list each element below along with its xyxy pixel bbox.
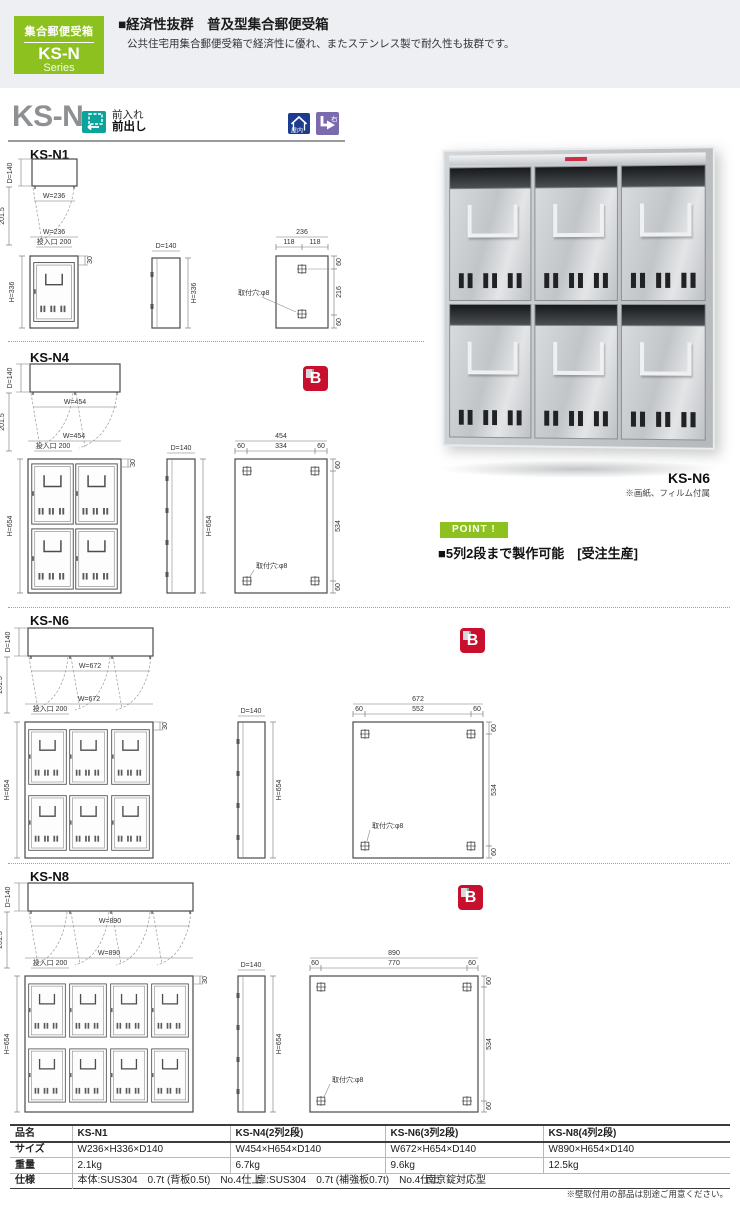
svg-text:30: 30 — [162, 722, 169, 730]
title-underline — [8, 140, 345, 142]
svg-text:W=236: W=236 — [43, 193, 65, 200]
indoor-label: 屋内 — [291, 127, 303, 135]
cabinet-doors — [449, 165, 706, 441]
svg-text:60: 60 — [336, 258, 343, 266]
indoor-icon: 屋内 — [288, 113, 310, 134]
svg-text:H=654: H=654 — [206, 515, 213, 536]
mount-hole-label: 取付穴:φ8 — [332, 1075, 363, 1084]
product-weight: 2.1kg — [72, 1158, 230, 1174]
product-size: W672×H654×D140 — [385, 1142, 543, 1158]
svg-text:118: 118 — [309, 239, 320, 246]
svg-text:D=140: D=140 — [241, 708, 262, 715]
ksn1-top-view: D=140 201.5 W=236 — [0, 159, 77, 245]
svg-text:534: 534 — [335, 520, 342, 532]
product-size: W890×H654×D140 — [543, 1142, 730, 1158]
table-row-spec: 仕様 本体:SUS304 0.7t (背板0.5t) No.4仕上 扉:SUS3… — [10, 1173, 730, 1189]
product-weight: 12.5kg — [543, 1158, 730, 1174]
svg-text:770: 770 — [388, 960, 400, 967]
svg-text:H=654: H=654 — [4, 1033, 11, 1054]
ksn4-back-view: 454 60 334 60 60 534 60 取付穴:φ8 — [235, 433, 342, 593]
mount-hole-label: 取付穴:φ8 — [256, 561, 287, 570]
svg-text:投入口 200: 投入口 200 — [33, 958, 68, 967]
svg-text:H=654: H=654 — [276, 1033, 283, 1054]
right-arrow-icon: 右 — [316, 112, 339, 135]
svg-text:60: 60 — [491, 724, 498, 732]
header-band: 集合郵便受箱 KS-N Series ■経済性抜群 普及型集合郵便受箱 公共住宅… — [0, 0, 740, 88]
svg-text:H=336: H=336 — [191, 282, 198, 303]
svg-text:60: 60 — [355, 706, 363, 713]
svg-text:H=654: H=654 — [276, 779, 283, 800]
row-label-weight: 重量 — [10, 1158, 72, 1174]
separator-3 — [8, 863, 730, 864]
svg-text:552: 552 — [412, 706, 424, 713]
photo-model-caption: KS-N6 — [520, 470, 710, 486]
spec-table: 品名 KS-N1 KS-N4(2列2段) KS-N6(3列2段) KS-N8(4… — [10, 1124, 730, 1189]
mailbox-door — [449, 167, 531, 301]
table-row-size: サイズ W236×H336×D140 W454×H654×D140 W672×H… — [10, 1142, 730, 1158]
svg-text:890: 890 — [388, 950, 400, 957]
product-name: KS-N4(2列2段) — [230, 1125, 385, 1142]
separator-2 — [8, 607, 730, 608]
svg-text:60: 60 — [473, 706, 481, 713]
row-label-size: サイズ — [10, 1142, 72, 1158]
svg-text:30: 30 — [202, 976, 209, 984]
series-box: 集合郵便受箱 KS-N Series — [14, 16, 104, 74]
ksn6-back-view: 672 60 552 60 60 534 60 取付穴:φ8 — [353, 696, 498, 858]
ksn8-top-view: D=140 201.5 W=890 — [0, 883, 193, 968]
separator-1 — [8, 341, 424, 342]
ksn4-drawings: D=140 201.5 W=454 W=454 投入口 200 30 H=654 — [0, 348, 420, 608]
svg-text:H=336: H=336 — [9, 281, 16, 302]
svg-text:534: 534 — [491, 784, 498, 796]
mailbox-cabinet-image — [442, 146, 715, 450]
ksn1-back-view: 236 118 118 60 216 60 取付穴:φ8 — [238, 229, 343, 328]
ksn4-top-view: D=140 201.5 W=454 — [0, 364, 120, 451]
headline: ■経済性抜群 普及型集合郵便受箱 — [118, 13, 329, 33]
svg-text:D=140: D=140 — [7, 367, 14, 388]
svg-text:60: 60 — [491, 848, 498, 856]
product-weight: 6.7kg — [230, 1158, 385, 1174]
series-word: Series — [14, 63, 104, 74]
row-label-name: 品名 — [10, 1125, 72, 1142]
point-badge: POINT ! — [440, 522, 508, 538]
svg-text:W=454: W=454 — [64, 399, 86, 406]
page-title: KS-N — [12, 100, 83, 134]
ksn4-front-view: W=454 投入口 200 30 H=654 — [7, 433, 137, 593]
ksn6-top-view: D=140 201.5 W=672 — [0, 628, 153, 713]
svg-text:60: 60 — [335, 461, 342, 469]
series-divider — [24, 42, 94, 43]
front-out-label: 前出し — [112, 121, 147, 134]
svg-text:201.5: 201.5 — [0, 676, 4, 694]
mailbox-door — [621, 165, 706, 302]
svg-text:W=672: W=672 — [79, 663, 101, 670]
series-category: 集合郵便受箱 — [14, 23, 104, 39]
product-name: KS-N6(3列2段) — [385, 1125, 543, 1142]
svg-text:投入口 200: 投入口 200 — [33, 704, 68, 713]
svg-text:60: 60 — [486, 1102, 493, 1110]
cabinet-top-rail — [449, 152, 706, 165]
ksn8-side-view: D=140 H=654 — [237, 962, 284, 1112]
photo-note: ※画紙、フィルム付属 — [520, 487, 710, 499]
right-label: 右 — [331, 114, 338, 123]
svg-text:60: 60 — [486, 977, 493, 985]
mailbox-door — [621, 304, 706, 441]
product-name: KS-N1 — [72, 1125, 230, 1142]
svg-text:W=236: W=236 — [43, 229, 65, 236]
svg-text:30: 30 — [130, 459, 137, 467]
spec-door: 扉:SUS304 0.7t (補強板0.7t) No.4仕上 — [256, 1175, 423, 1187]
product-size: W236×H336×D140 — [72, 1142, 230, 1158]
mailbox-door — [534, 166, 618, 301]
svg-text:D=140: D=140 — [241, 962, 262, 969]
photo-caption-block: KS-N6 ※画紙、フィルム付属 — [520, 470, 710, 499]
svg-text:534: 534 — [486, 1038, 493, 1050]
svg-text:W=890: W=890 — [99, 918, 121, 925]
svg-text:201.5: 201.5 — [0, 413, 6, 431]
svg-text:H=654: H=654 — [7, 515, 14, 536]
ksn8-front-view: W=890 投入口 200 30 H=654 — [4, 950, 209, 1112]
mount-hole-label: 取付穴:φ8 — [372, 821, 403, 830]
svg-text:60: 60 — [317, 443, 325, 450]
svg-text:W=454: W=454 — [63, 433, 85, 440]
product-size: W454×H654×D140 — [230, 1142, 385, 1158]
b-mark-letter: B — [467, 632, 479, 650]
ksn8-back-view: 890 60 770 60 60 534 60 取付穴:φ8 — [310, 950, 493, 1112]
svg-text:D=140: D=140 — [5, 631, 12, 652]
mailbox-door — [534, 304, 618, 440]
svg-text:454: 454 — [275, 433, 287, 440]
svg-text:60: 60 — [311, 960, 319, 967]
ksn1-drawings: D=140 201.5 W=236 W=236 投入口 200 30 H=336 — [0, 146, 348, 344]
svg-text:投入口 200: 投入口 200 — [36, 441, 71, 450]
svg-text:118: 118 — [283, 239, 294, 246]
svg-text:H=654: H=654 — [4, 779, 11, 800]
delivery-labels: 前入れ 前出し — [112, 109, 147, 134]
svg-text:30: 30 — [87, 256, 94, 264]
maker-logo — [565, 157, 587, 161]
svg-text:201.5: 201.5 — [0, 207, 6, 225]
svg-text:W=890: W=890 — [98, 950, 120, 957]
front-in-label: 前入れ — [112, 109, 147, 121]
ksn8-drawings: D=140 201.5 W=890 W=890 投入口 200 30 — [0, 868, 520, 1122]
svg-text:D=140: D=140 — [156, 243, 177, 250]
svg-text:201.5: 201.5 — [0, 931, 4, 949]
svg-text:216: 216 — [336, 286, 343, 298]
svg-text:334: 334 — [275, 443, 287, 450]
svg-text:60: 60 — [237, 443, 245, 450]
b-mark-letter: B — [310, 370, 322, 388]
series-model: KS-N — [14, 45, 104, 63]
product-weight: 9.6kg — [385, 1158, 543, 1174]
point-text: ■5列2段まで製作可能 [受注生産] — [438, 543, 638, 562]
footnote: ※壁取付用の部品は別途ご用意ください。 — [566, 1188, 728, 1200]
mount-hole-label: 取付穴:φ8 — [238, 288, 269, 297]
product-spec: 本体:SUS304 0.7t (背板0.5t) No.4仕上 扉:SUS304 … — [72, 1173, 730, 1189]
svg-text:60: 60 — [336, 318, 343, 326]
svg-text:D=140: D=140 — [5, 886, 12, 907]
svg-text:W=672: W=672 — [78, 696, 100, 703]
spec-lock: 南京錠対応型 — [426, 1175, 486, 1187]
svg-text:投入口 200: 投入口 200 — [37, 237, 72, 246]
description: 公共住宅用集合郵便受箱で経済性に優れ、またステンレス製で耐久性も抜群です。 — [127, 36, 515, 51]
ksn6-front-view: W=672 投入口 200 30 H=654 — [4, 696, 169, 858]
svg-text:D=140: D=140 — [171, 445, 192, 452]
ksn4-side-view: D=140 H=654 — [166, 445, 214, 593]
svg-text:60: 60 — [335, 583, 342, 591]
svg-text:236: 236 — [296, 229, 308, 236]
mailbox-door — [449, 304, 531, 439]
svg-text:D=140: D=140 — [7, 162, 14, 183]
house-icon: 屋内 — [288, 113, 310, 134]
right-opening-icon: 右 — [316, 112, 339, 135]
spec-body: 本体:SUS304 0.7t (背板0.5t) No.4仕上 — [78, 1175, 254, 1187]
ksn1-side-view: D=140 H=336 — [151, 243, 199, 328]
row-label-spec: 仕様 — [10, 1173, 72, 1189]
product-photo — [432, 148, 728, 470]
svg-text:672: 672 — [412, 696, 424, 703]
ksn1-front-view: W=236 投入口 200 30 H=336 — [9, 229, 94, 328]
table-row-name: 品名 KS-N1 KS-N4(2列2段) KS-N6(3列2段) KS-N8(4… — [10, 1125, 730, 1142]
product-name: KS-N8(4列2段) — [543, 1125, 730, 1142]
front-in-out-icon — [82, 111, 106, 133]
b-mark-letter: B — [465, 889, 477, 907]
ksn6-side-view: D=140 H=654 — [237, 708, 284, 858]
envelope-arrow-icon — [82, 111, 106, 133]
ksn6-drawings: D=140 201.5 W=672 W=672 投入口 200 30 H=654 — [0, 612, 520, 866]
svg-text:60: 60 — [468, 960, 476, 967]
table-row-weight: 重量 2.1kg 6.7kg 9.6kg 12.5kg — [10, 1158, 730, 1174]
catalog-page: 集合郵便受箱 KS-N Series ■経済性抜群 普及型集合郵便受箱 公共住宅… — [0, 0, 740, 1206]
